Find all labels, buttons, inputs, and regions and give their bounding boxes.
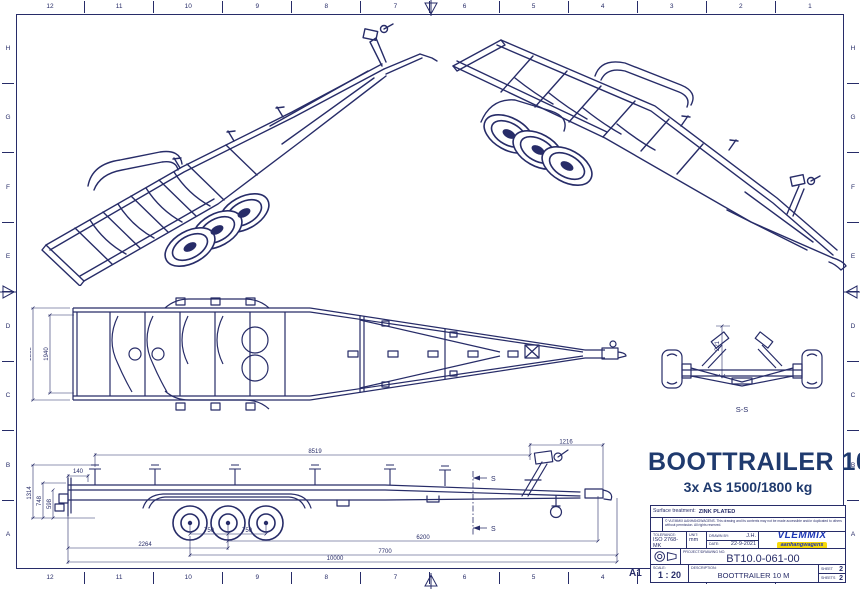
- drawing-number-label: PROJECT/DRAWING NO.: [683, 550, 725, 554]
- unit-value: mm: [689, 537, 704, 543]
- surface-treatment-cell: Surface treatment: ZINK PLATED: [651, 508, 845, 516]
- tolerance-cell: TOLERANCE: ISO 2768-MK: [651, 532, 687, 548]
- grid-col-label: 6: [430, 1, 499, 13]
- unit-cell: UNIT: mm: [687, 532, 707, 548]
- dim-side-front-overhang: 1216: [559, 440, 573, 446]
- grid-col-label: 10: [154, 572, 223, 584]
- centering-mark-icon: [0, 284, 16, 300]
- drawing-number-cell: PROJECT/DRAWING NO. BT10.0-061-00: [681, 549, 845, 564]
- grid-row-label: E: [2, 223, 14, 293]
- sheets-value: 2: [839, 575, 843, 582]
- logo-text: VLEMMIX: [777, 532, 826, 541]
- logo-subtext: aanhangwagens: [777, 542, 828, 548]
- centering-mark-icon: [423, 573, 439, 589]
- section-cut-label-bottom: S: [491, 526, 496, 533]
- surface-treatment-label: Surface treatment:: [653, 509, 696, 515]
- dim-side-rear-offset: 140: [73, 469, 84, 475]
- iso-view-front-right: [445, 14, 855, 290]
- sheet-label: SHEET: [821, 567, 833, 571]
- grid-col-label: 6: [430, 572, 499, 584]
- dim-side-axle-to-coupling: 6200: [416, 535, 430, 541]
- grid-col-label: 9: [223, 572, 292, 584]
- grid-col-label: 2: [707, 1, 776, 13]
- dim-plan-frame-width: 1940: [44, 347, 50, 361]
- dim-section-keel-height: 221: [715, 340, 721, 351]
- grid-col-label: 1: [776, 1, 844, 13]
- paper-format-label: A1: [629, 568, 642, 579]
- grid-row-label: H: [2, 14, 14, 84]
- company-logo: VLEMMIX aanhangwagens: [759, 532, 845, 548]
- description-label: DESCRIPTION:: [691, 566, 717, 570]
- revision-cell: [651, 518, 663, 531]
- side-view: S S 8519 1216 140 1314 748 598 750 750 6…: [25, 438, 645, 568]
- grid-col-label: 4: [569, 1, 638, 13]
- date-value: 22-9-2021: [731, 541, 756, 547]
- sheet-cell: SHEET 2 SHEETS 2: [819, 565, 845, 582]
- section-view-label: S-S: [736, 405, 749, 414]
- grid-row-label: C: [2, 362, 14, 432]
- drawn-by-value: J.H.: [746, 533, 756, 539]
- drawing-title: BOOTTRAILER 1000: [648, 448, 848, 477]
- dim-side-rear-to-first-axle: 2264: [138, 542, 152, 548]
- grid-col-label: 10: [154, 1, 223, 13]
- sheets-label: SHEETS: [821, 576, 835, 580]
- grid-row-label: F: [2, 153, 14, 223]
- description-value: BOOTTRAILER 10 M: [689, 571, 818, 580]
- grid-row-label: A: [2, 501, 14, 570]
- dim-side-height-rail: 598: [47, 498, 53, 509]
- dim-side-height-overall: 1314: [27, 486, 33, 500]
- dim-side-axle-spacing-b: 750: [242, 528, 253, 534]
- grid-col-label: 5: [500, 1, 569, 13]
- grid-col-label: 11: [85, 572, 154, 584]
- dim-side-overall-length: 10000: [327, 556, 344, 562]
- grid-col-label: 7: [361, 1, 430, 13]
- dim-plan-overall-width: 2368: [30, 347, 33, 361]
- grid-col-label: 7: [361, 572, 430, 584]
- projection-cell: [651, 549, 681, 564]
- drawn-date-cell: DRAWN BY: J.H. DATE: 22-9-2021: [707, 532, 759, 548]
- section-cut-label-top: S: [491, 476, 496, 483]
- grid-col-label: 11: [85, 1, 154, 13]
- grid-col-label: 8: [292, 1, 361, 13]
- iso-view-rear-left: [30, 14, 440, 286]
- dim-side-mid-length: 7700: [378, 549, 392, 555]
- surface-treatment-value: ZINK PLATED: [699, 509, 736, 515]
- grid-col-label: 12: [16, 1, 85, 13]
- top-view: 2368 1940: [30, 288, 640, 423]
- dim-side-top-length: 8519: [308, 449, 322, 455]
- sheet-value: 2: [839, 566, 843, 573]
- scale-label: SCALE:: [653, 566, 666, 570]
- dim-side-axle-spacing-a: 750: [204, 528, 215, 534]
- first-angle-projection-icon: [653, 550, 678, 563]
- grid-col-label: 8: [292, 572, 361, 584]
- grid-row-label: A: [847, 501, 859, 570]
- drawn-by-label: DRAWN BY:: [709, 534, 729, 538]
- grid-row-label: G: [2, 84, 14, 154]
- dim-side-height-frame: 748: [37, 495, 43, 506]
- grid-col-label: 3: [638, 1, 707, 13]
- drawing-subtitle: 3x AS 1500/1800 kg: [648, 479, 848, 495]
- grid-row-label: D: [2, 292, 14, 362]
- grid-col-label: 5: [500, 572, 569, 584]
- section-view: 221 S-S: [650, 318, 850, 418]
- title-block: Surface treatment: ZINK PLATED © VLEMMIX…: [650, 505, 846, 583]
- grid-col-label: 9: [223, 1, 292, 13]
- drawing-number-value: BT10.0-061-00: [681, 553, 845, 564]
- grid-col-label: 12: [16, 572, 85, 584]
- copyright-cell: © VLEMMIX AANHANGWAGENS. This drawing an…: [663, 518, 845, 531]
- scale-value: 1 : 20: [651, 570, 688, 580]
- tolerance-value: ISO 2768-MK: [653, 537, 684, 548]
- scale-cell: SCALE: 1 : 20: [651, 565, 689, 582]
- grid-col-label: 4: [569, 572, 638, 584]
- grid-row-label: B: [2, 431, 14, 501]
- date-label: DATE:: [709, 542, 719, 546]
- description-cell: DESCRIPTION: BOOTTRAILER 10 M: [689, 565, 819, 582]
